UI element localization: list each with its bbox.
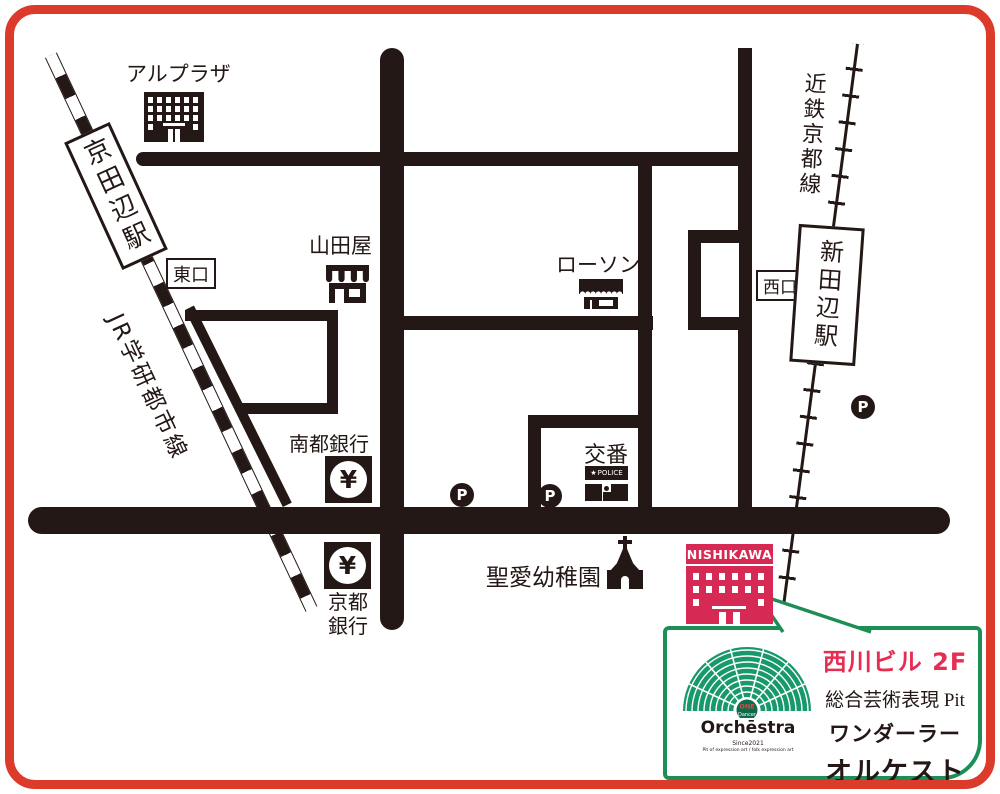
koban-label: 交番	[584, 437, 628, 469]
parking-icon: P	[450, 483, 474, 507]
nanto-bank-label: 南都銀行	[289, 428, 369, 457]
road-main-horizontal	[28, 507, 950, 534]
police-officer-icon	[603, 492, 611, 501]
yen-symbol: ¥	[339, 551, 356, 580]
road-lawson-horizontal	[385, 316, 653, 330]
alplaza-building-icon	[143, 92, 205, 142]
org-name-line2: オルケストラ	[812, 750, 978, 794]
logo-tagline1: Since2021	[686, 740, 810, 747]
west-exit-label: 西口	[763, 273, 797, 298]
shintanabe-station-box: 新田辺駅	[789, 224, 864, 366]
access-map: 京田辺駅 新田辺駅 東口 西口 JR学研都市線 近鉄京都線 アルプラザ 山田屋 …	[0, 0, 1000, 794]
road-east-vertical-b	[638, 158, 652, 510]
east-exit-label: 東口	[173, 261, 209, 287]
police-badge-label: POLICE	[598, 469, 623, 477]
road-yamadaya-right	[327, 310, 338, 414]
police-officer-icon	[604, 486, 609, 491]
kyoto-bank-label: 京都 銀行	[328, 590, 368, 638]
parking-letter: P	[457, 486, 468, 504]
road-station-loop	[688, 230, 752, 330]
kintetsu-line-label: 近鉄京都線	[791, 71, 829, 198]
shintanabe-station-label: 新田辺駅	[806, 238, 849, 352]
nishikawa-sign-label: NISHIKAWA	[687, 547, 772, 562]
parking-icon: P	[538, 484, 562, 508]
kyoto-bank-yen-icon: ¥	[324, 542, 371, 589]
callout-box: ONE Dancer Orchēstra Since2021 Pit of ex…	[663, 626, 982, 780]
kyoto-bank-label-line2: 銀行	[328, 614, 368, 638]
police-badge: ★ POLICE	[585, 466, 628, 480]
police-box-icon	[611, 484, 628, 501]
road-center-vertical	[380, 48, 404, 630]
logo-wordmark: Orchēstra	[686, 718, 810, 738]
police-box-icon	[585, 484, 602, 501]
callout-text-column: 西川ビル 2F 総合芸術表現 Pit ワンダーラー オルケストラ	[812, 636, 978, 794]
parking-icon: P	[851, 395, 875, 419]
road-north-horizontal	[136, 152, 752, 166]
nishikawa-sign: NISHIKAWA	[686, 544, 773, 564]
church-icon	[601, 536, 649, 589]
road-koban-top	[528, 415, 652, 428]
yen-symbol: ¥	[340, 465, 357, 494]
parking-letter: P	[545, 487, 556, 505]
lawson-storefront-icon	[578, 275, 624, 309]
kyoto-bank-label-line1: 京都	[328, 590, 368, 614]
orchestra-fan-logo: ONE Dancer	[681, 638, 813, 718]
road-yamadaya-bottom	[237, 403, 338, 414]
yamadaya-storefront-icon	[324, 261, 371, 305]
road-yamadaya-top	[185, 310, 338, 321]
org-name-line1: ワンダーラー	[812, 718, 978, 748]
nanto-bank-yen-icon: ¥	[325, 456, 372, 503]
alplaza-label: アルプラザ	[126, 58, 231, 88]
kyotanabe-station-box: 京田辺駅	[64, 122, 168, 270]
seiai-kindergarten-label: 聖愛幼稚園	[486, 558, 601, 592]
org-type-label: 総合芸術表現 Pit	[812, 685, 978, 712]
building-floor-label: 西川ビル 2F	[812, 642, 978, 677]
logo-tagline2: Pit of expression art / folk expression …	[686, 748, 810, 753]
logo-badge-top-label: ONE	[739, 703, 754, 711]
yamadaya-label: 山田屋	[309, 230, 372, 260]
nishikawa-building-icon	[686, 566, 773, 624]
parking-letter: P	[858, 398, 869, 416]
east-exit-box: 東口	[166, 258, 216, 289]
police-badge-star-icon: ★	[590, 469, 596, 477]
